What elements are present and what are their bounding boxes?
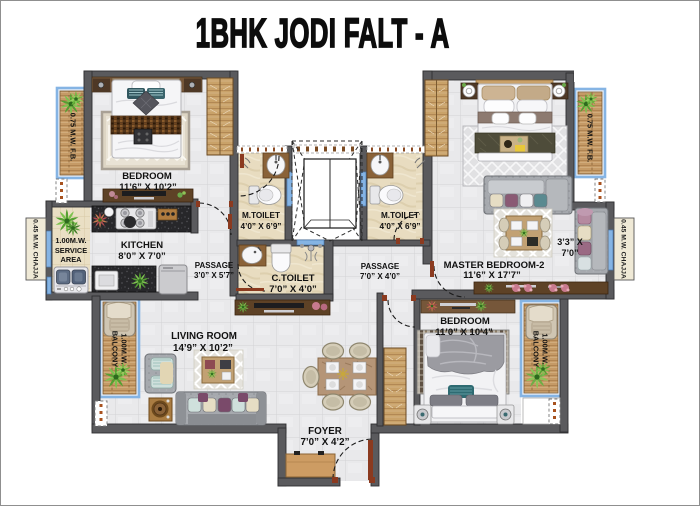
svg-text:14’9” X 10’2”: 14’9” X 10’2” — [173, 343, 233, 354]
svg-text:AREA: AREA — [61, 255, 83, 264]
svg-text:PASSAGE: PASSAGE — [195, 261, 234, 270]
svg-text:0.75 M.W. F.B.: 0.75 M.W. F.B. — [69, 113, 78, 161]
svg-text:BEDROOM: BEDROOM — [440, 316, 490, 327]
svg-text:11’6” X 10’2”: 11’6” X 10’2” — [119, 182, 177, 193]
svg-text:3’3” X: 3’3” X — [557, 237, 583, 247]
svg-text:KITCHEN: KITCHEN — [121, 240, 163, 251]
svg-text:SERVICE: SERVICE — [55, 246, 87, 255]
svg-text:7’0”: 7’0” — [561, 248, 578, 258]
svg-text:11’6” X 17’7”: 11’6” X 17’7” — [463, 270, 521, 281]
svg-text:C.TOILET: C.TOILET — [271, 273, 314, 284]
svg-text:M.TOILET: M.TOILET — [242, 211, 280, 220]
svg-text:8’0” X 7’0”: 8’0” X 7’0” — [118, 251, 166, 262]
svg-text:1.00M.W.: 1.00M.W. — [541, 333, 550, 364]
svg-text:7’0” X 4’0”: 7’0” X 4’0” — [360, 272, 400, 281]
svg-text:4’0” X 6’9”: 4’0” X 6’9” — [380, 222, 421, 231]
svg-text:PASSAGE: PASSAGE — [361, 262, 400, 271]
svg-text:BALCONY: BALCONY — [532, 331, 541, 368]
svg-text:FOYER: FOYER — [308, 426, 342, 437]
svg-text:1BHK JODI FALT - A: 1BHK JODI FALT - A — [196, 11, 450, 56]
svg-text:1.00M.W.: 1.00M.W. — [55, 236, 86, 245]
svg-text:0.75 M.W. F.B.: 0.75 M.W. F.B. — [586, 114, 595, 162]
svg-text:4’0” X 6’9”: 4’0” X 6’9” — [241, 222, 282, 231]
svg-text:7’0” X 4’2”: 7’0” X 4’2” — [300, 437, 349, 448]
svg-text:3’0” X 5’7”: 3’0” X 5’7” — [194, 271, 234, 280]
svg-text:LIVING ROOM: LIVING ROOM — [171, 331, 237, 342]
svg-text:BALCONY: BALCONY — [111, 331, 120, 368]
svg-text:7’0” X 4’0”: 7’0” X 4’0” — [269, 284, 317, 295]
svg-text:0.45 M.W. CHAJJA: 0.45 M.W. CHAJJA — [31, 219, 38, 279]
svg-text:M.TOILET: M.TOILET — [381, 211, 419, 220]
svg-text:BEDROOM: BEDROOM — [122, 171, 172, 182]
svg-text:1.00M.W.: 1.00M.W. — [120, 333, 129, 364]
svg-text:11’0” X 10’4”: 11’0” X 10’4” — [435, 327, 493, 338]
svg-text:0.45 M.W. CHAJJA: 0.45 M.W. CHAJJA — [619, 219, 626, 279]
